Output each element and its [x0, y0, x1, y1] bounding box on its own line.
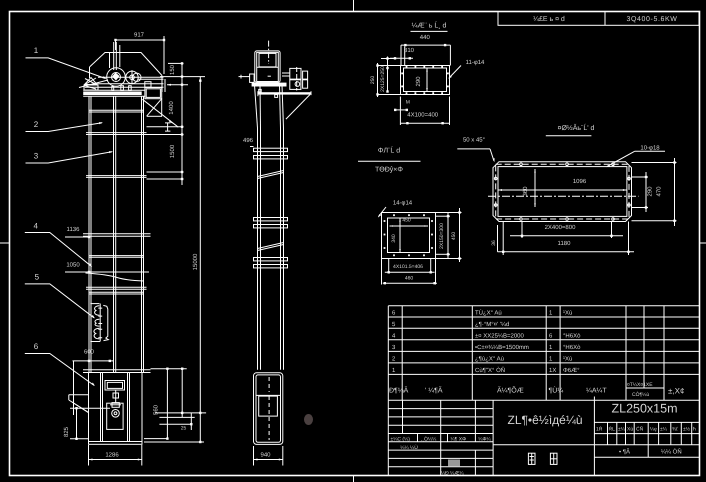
svg-text:560: 560 [153, 404, 160, 415]
svg-text:¼A¼T: ¼A¼T [586, 388, 607, 395]
svg-text:¾ť: ¾ť [672, 427, 678, 433]
svg-text:M: M [406, 99, 410, 105]
svg-text:290: 290 [647, 186, 654, 197]
svg-text:ΤӨĐŷ×Φ: ΤӨĐŷ×Φ [375, 166, 403, 174]
svg-text:±¼: ±¼ [618, 427, 626, 433]
svg-text:4X101.5=406: 4X101.5=406 [393, 264, 423, 270]
svg-text:1X: 1X [549, 367, 556, 374]
svg-text:11-φ14: 11-φ14 [466, 59, 485, 66]
svg-text:36: 36 [491, 240, 497, 246]
svg-text:±¼C (¼): ±¼C (¼) [391, 437, 411, 443]
svg-text:4: 4 [33, 222, 38, 231]
svg-text:±¤ XX25¼B=2000: ±¤ XX25¼B=2000 [475, 332, 524, 339]
svg-text:1400: 1400 [168, 101, 175, 115]
svg-text:1286: 1286 [105, 451, 119, 458]
svg-text:940: 940 [260, 451, 271, 458]
svg-text:Cù¶"X° ÒŇ: Cù¶"X° ÒŇ [475, 366, 505, 374]
svg-text:' ¼¶Ă: ' ¼¶Ă [425, 386, 443, 395]
svg-text:¹Xù: ¹Xù [563, 355, 572, 362]
svg-text:ĆÑ: ĆÑ [636, 426, 644, 433]
svg-text:2: 2 [34, 120, 39, 129]
svg-text:¶Ù¼: ¶Ù¼ [549, 386, 564, 395]
svg-text:¹Xù: ¹Xù [563, 310, 572, 317]
svg-text:ZL250x15m: ZL250x15m [611, 402, 677, 416]
svg-text:496: 496 [243, 137, 254, 144]
svg-text:Xù: Xù [627, 427, 633, 433]
svg-text:340: 340 [391, 234, 397, 243]
svg-text:1180: 1180 [558, 240, 572, 247]
svg-text:1: 1 [34, 46, 39, 55]
svg-text:4X100=400: 4X100=400 [407, 112, 439, 119]
svg-text:360: 360 [522, 186, 529, 197]
svg-text:450: 450 [402, 218, 411, 224]
svg-text:•C±¤¾¼B=1500mm: •C±¤¾¼B=1500mm [475, 344, 529, 351]
svg-text:¼¶ XΦ: ¼¶ XΦ [451, 437, 467, 443]
svg-text:3Q400-5.6KW: 3Q400-5.6KW [627, 16, 678, 23]
svg-text:¼¼ ¼Ù: ¼¼ ¼Ù [400, 444, 418, 451]
svg-text:ZL¶•ê½ìдé¼ù: ZL¶•ê½ìдé¼ù [507, 413, 582, 427]
svg-text:1096: 1096 [573, 178, 587, 185]
svg-text:14-φ14: 14-φ14 [393, 200, 413, 207]
svg-text:¼¼ ÒŇ: ¼¼ ÒŇ [661, 448, 682, 456]
svg-text:¼Φ¼: ¼Φ¼ [478, 437, 491, 443]
svg-text:450: 450 [451, 232, 457, 241]
svg-text:6: 6 [34, 342, 39, 351]
svg-text:TÙ¿X° Aù: TÙ¿X° Aù [475, 309, 502, 317]
svg-text:460: 460 [405, 276, 414, 282]
svg-text:¤Ø½Ăь¨Ĺ' d: ¤Ø½Ăь¨Ĺ' d [558, 123, 595, 132]
svg-text:10-φ18: 10-φ18 [640, 145, 660, 152]
svg-text:825: 825 [63, 426, 70, 437]
svg-text:2X150=300: 2X150=300 [439, 223, 445, 249]
svg-text:°H6Xò: °H6Xò [563, 332, 581, 339]
svg-text:ħ: ħ [693, 427, 696, 433]
svg-text:Φ6Æ°: Φ6Æ° [563, 367, 580, 374]
svg-text:±¼: ±¼ [660, 427, 668, 433]
svg-text:50 x 45°: 50 x 45° [463, 137, 486, 144]
svg-text:3: 3 [34, 152, 39, 161]
svg-text:1050: 1050 [66, 262, 80, 269]
svg-text:2X400=800: 2X400=800 [545, 224, 577, 231]
svg-text:25: 25 [181, 426, 187, 432]
svg-text:CÒ¶¼ù: CÒ¶¼ù [632, 391, 649, 398]
svg-text:917: 917 [134, 32, 145, 39]
svg-text:¿¶·°M°¤' '¼d: ¿¶·°M°¤' '¼d [475, 321, 509, 328]
svg-text:5: 5 [35, 273, 40, 282]
svg-text:¼Æ¨ ь Ĺ¸ d: ¼Æ¨ ь Ĺ¸ d [412, 21, 447, 30]
svg-text:¼Ð ¼Æ¼: ¼Ð ¼Æ¼ [441, 471, 464, 477]
svg-text:1136: 1136 [67, 226, 81, 233]
svg-text:¤T¼X¤1XE: ¤T¼X¤1XE [627, 382, 653, 388]
svg-text:• ¶Ă: • ¶Ă [619, 448, 630, 456]
svg-text:¼ę: ¼ę [650, 427, 657, 433]
svg-text:2X125=250: 2X125=250 [380, 66, 386, 92]
svg-text:¿¶ù¿X° Aù: ¿¶ù¿X° Aù [475, 355, 504, 362]
svg-text:150: 150 [169, 64, 176, 75]
svg-text:1500: 1500 [169, 144, 176, 158]
svg-text:Ă¼¶ÕÆ: Ă¼¶ÕÆ [497, 386, 524, 395]
svg-text:,¸Ò¼¼: ,¸Ò¼¼ [421, 436, 437, 443]
svg-text:ŔL: ŔL [609, 426, 616, 433]
svg-text:1Ŕ: 1Ŕ [596, 426, 603, 433]
svg-text:470: 470 [656, 186, 663, 197]
svg-text:±½: ±½ [683, 427, 691, 433]
svg-text:Ð¶¼Ă: Ð¶¼Ă [389, 386, 409, 395]
svg-text:°H6Xò: °H6Xò [563, 344, 581, 351]
svg-text:ΦЛ¨Ĺ d: ΦЛ¨Ĺ d [378, 146, 400, 155]
svg-text:±,X¢: ±,X¢ [668, 387, 684, 396]
svg-text:310: 310 [404, 47, 415, 54]
svg-text:¼£E ь ¤ d: ¼£E ь ¤ d [533, 15, 565, 23]
svg-text:290: 290 [415, 76, 422, 87]
svg-text:440: 440 [420, 34, 431, 41]
svg-text:250: 250 [370, 76, 376, 85]
svg-text:600: 600 [84, 349, 95, 356]
svg-text:15000: 15000 [192, 253, 199, 270]
